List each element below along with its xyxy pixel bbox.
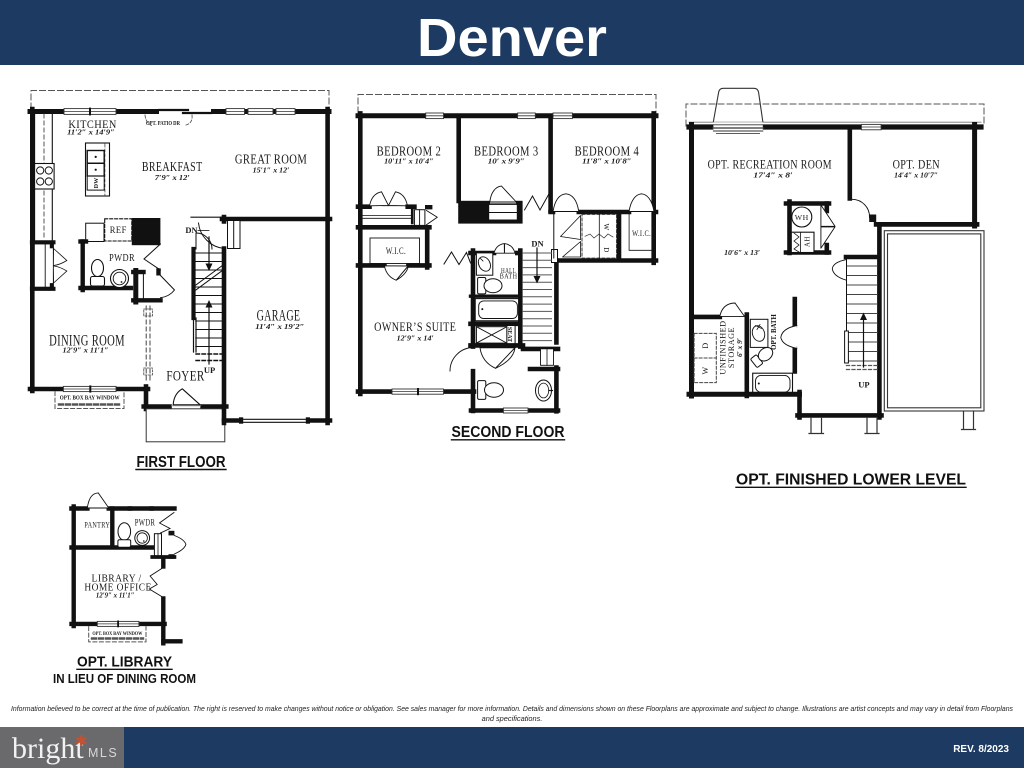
svg-text:10′ x 9′9″: 10′ x 9′9″ xyxy=(488,157,525,166)
svg-text:DW: DW xyxy=(93,177,100,188)
svg-text:PWDR: PWDR xyxy=(109,252,135,264)
svg-text:17′4″ x 8′: 17′4″ x 8′ xyxy=(753,171,792,180)
svg-text:15′1″ x 12′: 15′1″ x 12′ xyxy=(253,166,290,175)
svg-text:12′9″ x 11′1″: 12′9″ x 11′1″ xyxy=(96,591,135,600)
svg-text:10′11″ x 10′4″: 10′11″ x 10′4″ xyxy=(384,157,434,166)
svg-text:GREAT ROOM: GREAT ROOM xyxy=(235,152,307,167)
svg-text:14′4″ x 10′7″: 14′4″ x 10′7″ xyxy=(894,171,938,180)
svg-text:W.I.C.: W.I.C. xyxy=(632,228,651,238)
svg-text:✱: ✱ xyxy=(75,733,88,750)
svg-text:OPT. BOX BAY WINDOW: OPT. BOX BAY WINDOW xyxy=(60,395,120,401)
svg-text:OPT. DEN: OPT. DEN xyxy=(893,156,940,171)
svg-text:MLS: MLS xyxy=(88,746,118,760)
svg-text:W: W xyxy=(701,366,710,374)
svg-text:OPT. BOX BAY WINDOW: OPT. BOX BAY WINDOW xyxy=(92,631,142,637)
svg-text:11′2″ x 14′9″: 11′2″ x 14′9″ xyxy=(67,128,115,137)
svg-text:DN: DN xyxy=(531,239,544,249)
svg-text:Denver: Denver xyxy=(417,9,607,68)
svg-text:6′ x 9′: 6′ x 9′ xyxy=(735,338,744,357)
svg-text:OPT. PATIO DR: OPT. PATIO DR xyxy=(146,120,180,127)
svg-text:UP: UP xyxy=(858,380,869,390)
svg-text:DN: DN xyxy=(185,225,198,235)
svg-text:bright: bright xyxy=(12,732,84,765)
svg-text:OPT. BATH: OPT. BATH xyxy=(771,313,778,349)
svg-text:7′9″ x 12′: 7′9″ x 12′ xyxy=(155,173,190,182)
svg-text:REF: REF xyxy=(110,226,127,236)
svg-text:REV. 8/2023: REV. 8/2023 xyxy=(953,744,1009,755)
svg-text:OPT. RECREATION ROOM: OPT. RECREATION ROOM xyxy=(708,156,832,171)
svg-text:AH: AH xyxy=(804,236,812,247)
svg-text:12′9″ x 14′: 12′9″ x 14′ xyxy=(397,333,434,342)
svg-text:WH: WH xyxy=(795,213,809,222)
svg-text:FOYER: FOYER xyxy=(166,369,204,385)
svg-text:BATH: BATH xyxy=(500,272,518,281)
svg-text:11′8″ x 10′8″: 11′8″ x 10′8″ xyxy=(582,157,632,166)
svg-text:BREAKFAST: BREAKFAST xyxy=(142,159,203,174)
svg-text:SECOND FLOOR: SECOND FLOOR xyxy=(452,424,566,441)
svg-text:W: W xyxy=(602,223,610,230)
svg-text:D: D xyxy=(602,247,610,253)
svg-text:Information believed to be cor: Information believed to be correct at th… xyxy=(11,704,1013,713)
svg-text:11′4″ x 19′2″: 11′4″ x 19′2″ xyxy=(255,322,304,331)
svg-text:and specifications.: and specifications. xyxy=(482,714,543,723)
svg-text:PANTRY: PANTRY xyxy=(84,519,110,529)
svg-text:12′9″ x 11′1″: 12′9″ x 11′1″ xyxy=(63,345,109,354)
svg-text:OPT. LIBRARY: OPT. LIBRARY xyxy=(77,654,172,671)
svg-text:OPT. FINISHED LOWER LEVEL: OPT. FINISHED LOWER LEVEL xyxy=(736,472,966,489)
svg-text:W.I.C.: W.I.C. xyxy=(386,246,406,256)
svg-text:D: D xyxy=(701,342,710,348)
svg-text:SEAT: SEAT xyxy=(506,327,512,342)
svg-text:10′6″ x 13′: 10′6″ x 13′ xyxy=(724,248,760,257)
svg-text:PWDR: PWDR xyxy=(135,518,156,528)
svg-text:IN LIEU OF DINING ROOM: IN LIEU OF DINING ROOM xyxy=(53,672,196,686)
svg-text:FIRST FLOOR: FIRST FLOOR xyxy=(137,454,226,471)
svg-text:OWNER’S SUITE: OWNER’S SUITE xyxy=(374,319,456,334)
svg-text:UP: UP xyxy=(204,365,215,375)
